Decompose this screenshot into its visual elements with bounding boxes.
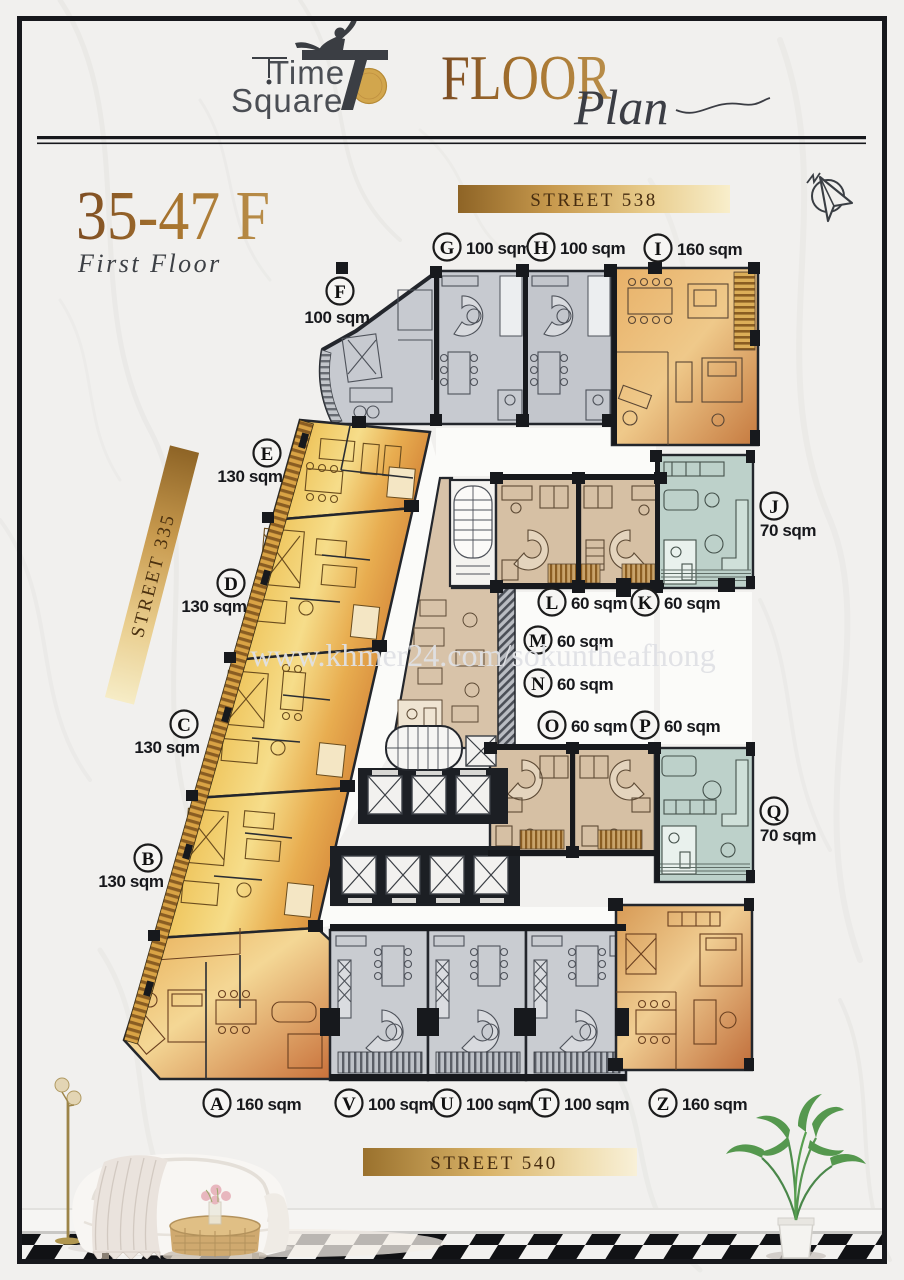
svg-text:U: U bbox=[440, 1094, 454, 1115]
svg-text:E: E bbox=[261, 444, 274, 465]
svg-text:T: T bbox=[539, 1094, 552, 1115]
svg-text:100 sqm: 100 sqm bbox=[466, 1095, 532, 1114]
svg-text:100 sqm: 100 sqm bbox=[564, 1095, 630, 1114]
svg-text:N: N bbox=[531, 674, 545, 695]
svg-text:35-47 F: 35-47 F bbox=[76, 178, 270, 255]
svg-text:130 sqm: 130 sqm bbox=[134, 738, 200, 757]
svg-text:60 sqm: 60 sqm bbox=[664, 717, 720, 736]
svg-text:160 sqm: 160 sqm bbox=[236, 1095, 302, 1114]
svg-text:www.khmer24.com/sokuntheafhong: www.khmer24.com/sokuntheafhong bbox=[250, 637, 715, 673]
svg-text:STREET 540: STREET 540 bbox=[430, 1153, 558, 1174]
svg-text:F: F bbox=[334, 282, 346, 303]
svg-text:130 sqm: 130 sqm bbox=[181, 597, 247, 616]
svg-text:60 sqm: 60 sqm bbox=[571, 717, 627, 736]
svg-text:Q: Q bbox=[767, 802, 782, 823]
svg-text:100 sqm: 100 sqm bbox=[466, 239, 532, 258]
svg-text:100 sqm: 100 sqm bbox=[560, 239, 626, 258]
svg-text:130 sqm: 130 sqm bbox=[217, 467, 283, 486]
svg-text:70 sqm: 70 sqm bbox=[760, 521, 816, 540]
svg-text:70 sqm: 70 sqm bbox=[760, 826, 816, 845]
svg-text:K: K bbox=[638, 593, 653, 614]
svg-text:G: G bbox=[440, 238, 455, 259]
svg-text:O: O bbox=[545, 716, 560, 737]
svg-text:Plan: Plan bbox=[573, 79, 668, 135]
svg-text:C: C bbox=[177, 715, 191, 736]
svg-text:H: H bbox=[534, 238, 549, 259]
svg-text:First Floor: First Floor bbox=[77, 249, 222, 278]
svg-text:130 sqm: 130 sqm bbox=[98, 872, 164, 891]
svg-text:160 sqm: 160 sqm bbox=[682, 1095, 748, 1114]
svg-text:P: P bbox=[639, 716, 651, 737]
svg-text:I: I bbox=[654, 239, 661, 260]
svg-text:100 sqm: 100 sqm bbox=[368, 1095, 434, 1114]
svg-text:100 sqm: 100 sqm bbox=[304, 308, 370, 327]
svg-text:60 sqm: 60 sqm bbox=[571, 594, 627, 613]
svg-text:L: L bbox=[546, 593, 559, 614]
svg-text:Z: Z bbox=[657, 1094, 670, 1115]
svg-text:Square: Square bbox=[231, 82, 343, 119]
svg-text:D: D bbox=[224, 574, 238, 595]
svg-text:J: J bbox=[769, 497, 779, 518]
svg-text:60 sqm: 60 sqm bbox=[557, 675, 613, 694]
svg-text:60 sqm: 60 sqm bbox=[664, 594, 720, 613]
svg-text:160 sqm: 160 sqm bbox=[677, 240, 743, 259]
svg-text:A: A bbox=[210, 1094, 224, 1115]
svg-text:STREET 538: STREET 538 bbox=[530, 190, 658, 211]
svg-text:V: V bbox=[342, 1094, 356, 1115]
svg-text:B: B bbox=[142, 849, 155, 870]
